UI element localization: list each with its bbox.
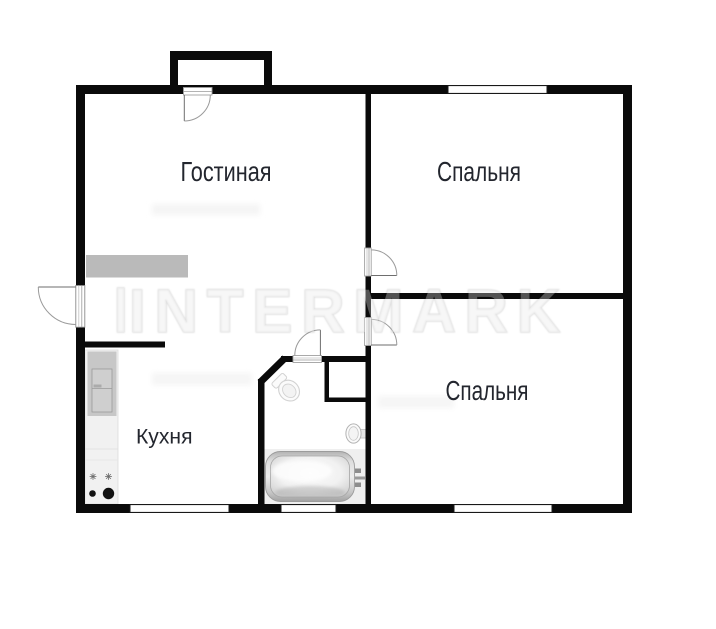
svg-text:Гостиная: Гостиная (181, 156, 272, 187)
svg-text:Спальня: Спальня (437, 156, 521, 187)
svg-text:Спальня: Спальня (446, 375, 529, 406)
svg-text:Кухня: Кухня (136, 426, 193, 449)
svg-text:INTERMARK: INTERMARK (129, 277, 569, 345)
